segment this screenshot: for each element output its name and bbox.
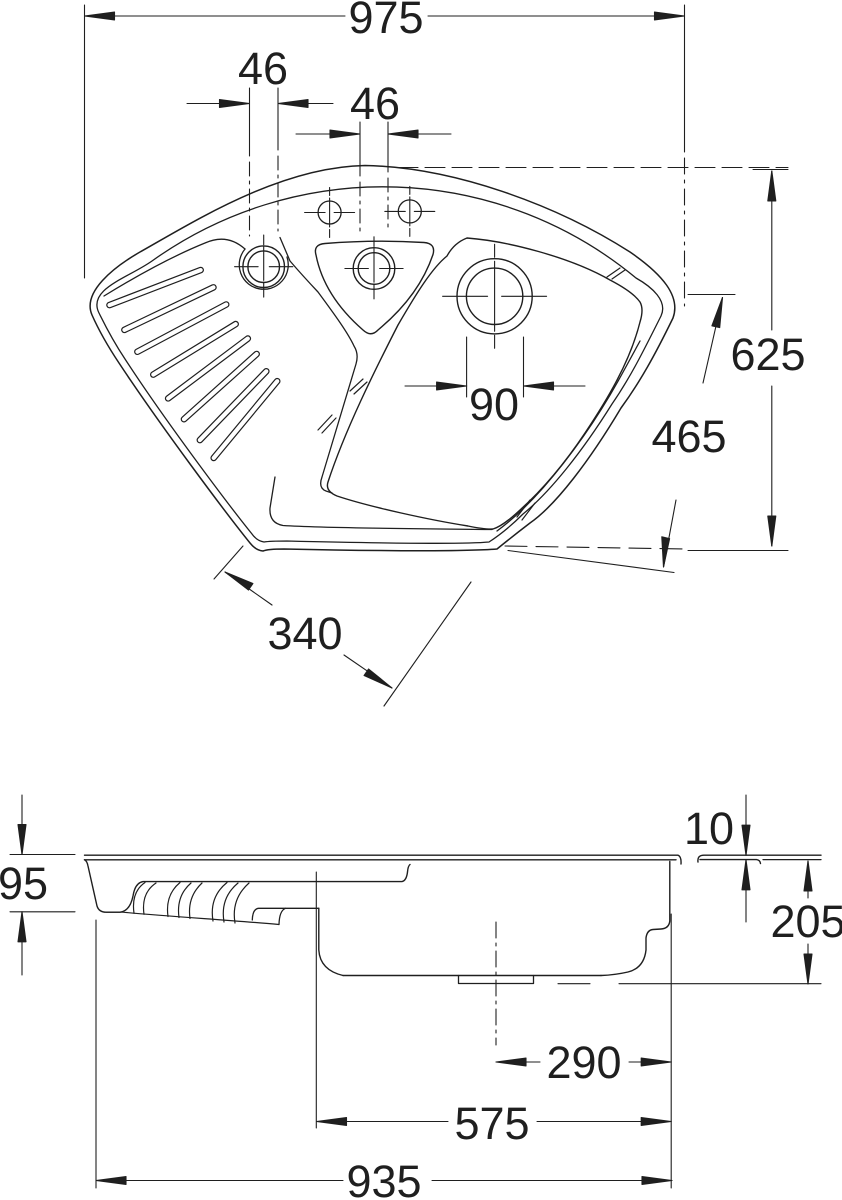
svg-text:10: 10 [684, 803, 734, 854]
svg-text:340: 340 [267, 608, 342, 659]
svg-text:290: 290 [546, 1037, 621, 1088]
svg-text:95: 95 [0, 858, 48, 909]
svg-text:46: 46 [238, 43, 288, 94]
svg-text:46: 46 [350, 78, 400, 129]
svg-text:465: 465 [651, 411, 726, 462]
svg-text:975: 975 [348, 0, 423, 43]
svg-text:625: 625 [730, 329, 805, 380]
svg-text:205: 205 [770, 896, 842, 947]
svg-text:575: 575 [454, 1098, 529, 1149]
svg-text:935: 935 [346, 1156, 421, 1200]
svg-text:90: 90 [469, 379, 519, 430]
